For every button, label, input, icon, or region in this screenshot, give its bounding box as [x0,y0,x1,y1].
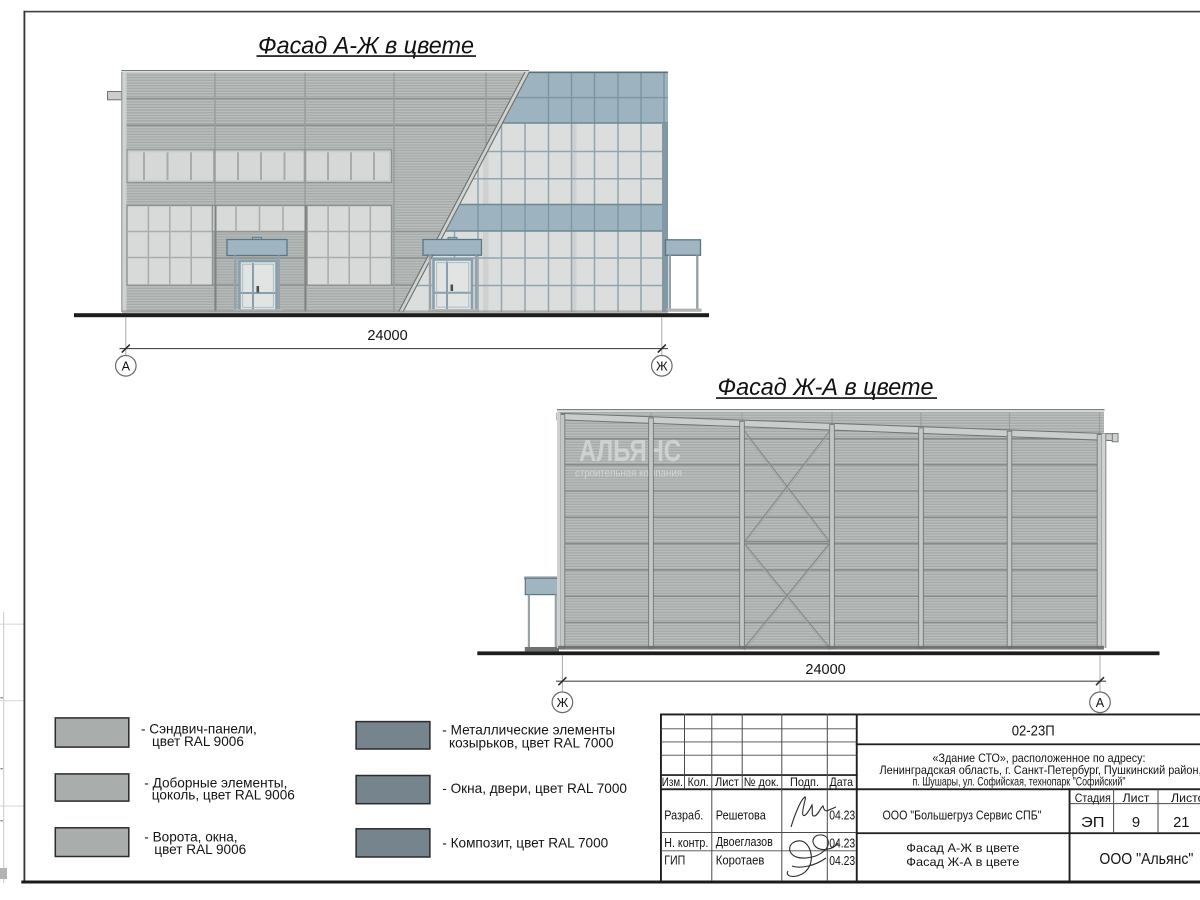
svg-text:Решетова: Решетова [716,808,767,823]
svg-text:Фасад Ж-А в цвете: Фасад Ж-А в цвете [718,374,934,401]
svg-text:ЭП: ЭП [1081,815,1105,831]
svg-text:Кол.: Кол. [688,775,709,789]
svg-text:строительная компания: строительная компания [575,467,682,479]
svg-text:Стадия: Стадия [1075,791,1111,805]
svg-text:04.23: 04.23 [829,853,855,868]
svg-text:04.23: 04.23 [829,835,855,850]
svg-text:Фасад А-Ж в цвете: Фасад А-Ж в цвете [906,841,1019,855]
svg-text:Двоеглазов: Двоеглазов [716,834,773,849]
svg-text:24000: 24000 [367,328,407,344]
svg-text:02-23П: 02-23П [1012,722,1055,739]
svg-text:Листов: Листов [1171,791,1200,805]
svg-text:- Композит, цвет RAL 7000: - Композит, цвет RAL 7000 [442,835,608,850]
svg-text:А: А [122,359,131,373]
svg-text:- Окна, двери, цвет RAL 7000: - Окна, двери, цвет RAL 7000 [442,781,627,796]
svg-text:А: А [1096,696,1105,710]
svg-text:Лист: Лист [715,775,739,789]
svg-text:козырьков, цвет RAL 7000: козырьков, цвет RAL 7000 [449,735,614,750]
svg-text:цвет RAL 9006: цвет RAL 9006 [152,734,244,749]
svg-text:№ док.: № док. [744,775,779,789]
svg-text:Ж: Ж [656,359,668,373]
svg-text:ООО "Альянс": ООО "Альянс" [1099,851,1193,868]
svg-text:24000: 24000 [805,662,845,678]
svg-text:Коротаев: Коротаев [716,852,765,867]
svg-text:Ж: Ж [557,696,569,710]
svg-text:ООО "Большегруз Сервис СПБ": ООО "Большегруз Сервис СПБ" [883,807,1042,822]
svg-text:04.23: 04.23 [829,807,855,822]
svg-text:Дата: Дата [830,775,854,789]
svg-text:Подп.: Подп. [790,775,819,789]
svg-text:Н. контр.: Н. контр. [664,835,708,850]
svg-text:цоколь, цвет RAL 9006: цоколь, цвет RAL 9006 [152,788,295,803]
svg-text:Разраб.: Разраб. [664,808,703,823]
svg-text:21: 21 [1173,815,1189,831]
svg-text:ГИП: ГИП [664,853,685,868]
svg-text:цвет RAL 9006: цвет RAL 9006 [154,842,246,857]
svg-text:9: 9 [1132,815,1140,831]
svg-text:Фасад Ж-А в цвете: Фасад Ж-А в цвете [906,855,1019,869]
svg-text:п. Шушары, ул. Софийская, техн: п. Шушары, ул. Софийская, технопарк "Соф… [913,775,1126,789]
svg-text:Изм.: Изм. [662,775,683,789]
svg-text:Лист: Лист [1123,791,1150,805]
svg-text:АЛЬЯНС: АЛЬЯНС [579,434,681,468]
